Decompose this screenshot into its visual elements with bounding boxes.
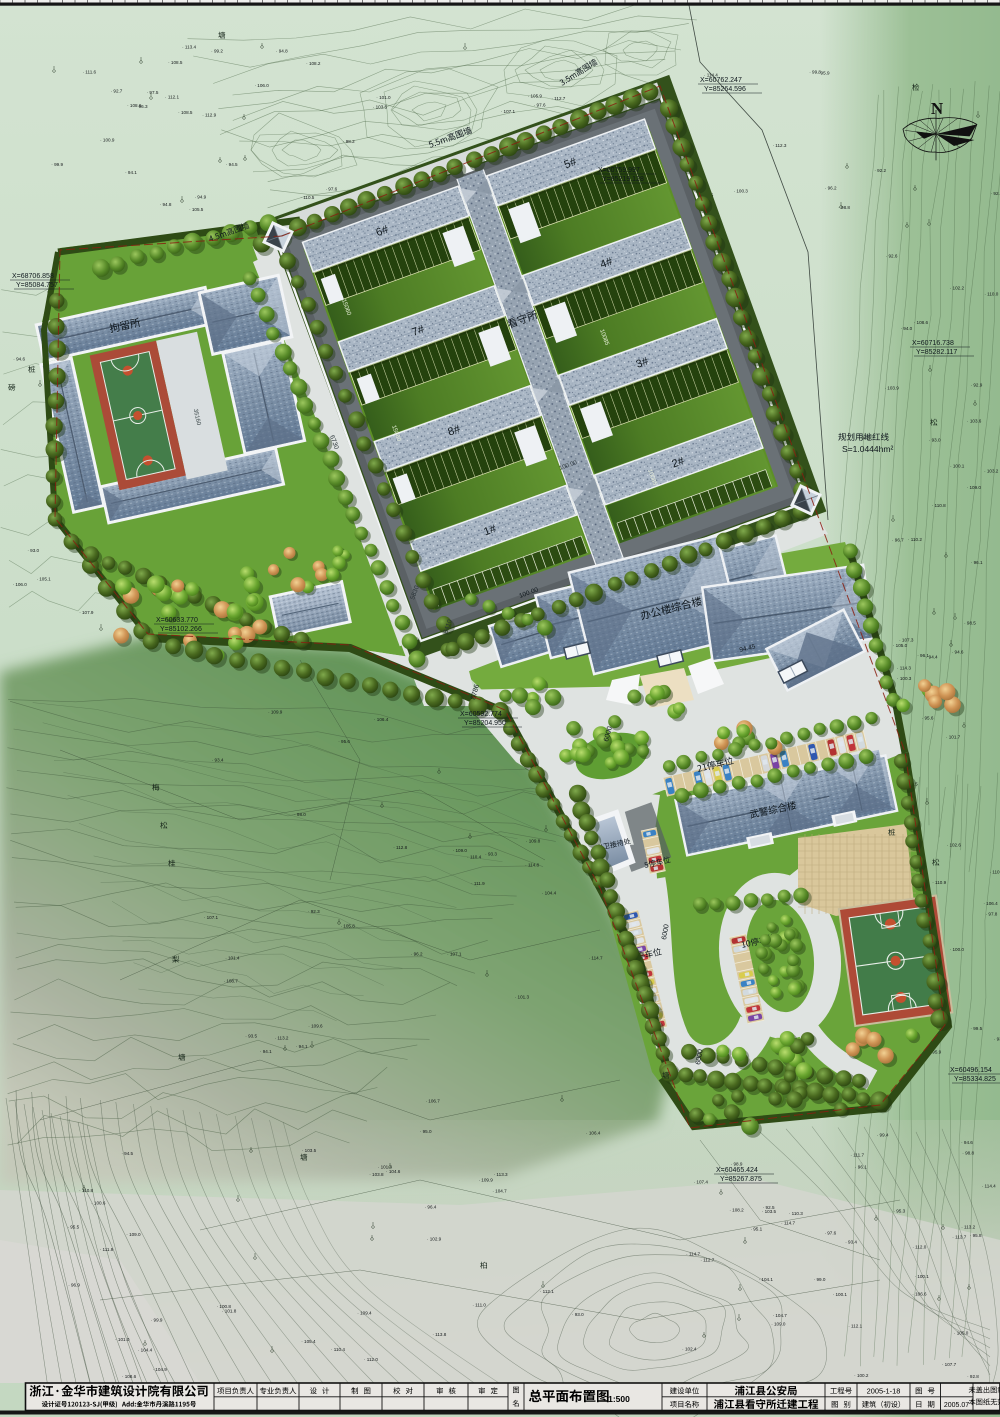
svg-text:· 97.8: · 97.8	[986, 911, 998, 916]
svg-text:· 112.1: · 112.1	[165, 95, 179, 100]
svg-text:· 94.9: · 94.9	[194, 195, 206, 200]
svg-text:· 99.9: · 99.9	[151, 1317, 163, 1322]
svg-text:· 109.9: · 109.9	[268, 709, 283, 714]
svg-text:· 95.3: · 95.3	[893, 1208, 905, 1213]
svg-text:· 105.4: · 105.4	[301, 1339, 316, 1344]
svg-text:· 95.5: · 95.5	[67, 1225, 79, 1230]
svg-text:Y=85102.266: Y=85102.266	[160, 626, 202, 633]
svg-text:Y=85334.825: Y=85334.825	[954, 1076, 996, 1083]
svg-text:· 94.5: · 94.5	[121, 1151, 133, 1156]
svg-text:· 93.9: · 93.9	[994, 1037, 1000, 1042]
svg-text:· 107.4: · 107.4	[694, 1180, 709, 1185]
svg-text:· 97.6: · 97.6	[534, 103, 546, 108]
svg-text:· 101.0: · 101.0	[376, 95, 391, 100]
svg-text:· 96.7: · 96.7	[892, 537, 904, 542]
svg-text:· 92.5: · 92.5	[763, 1205, 775, 1210]
svg-text:· 99.9: · 99.9	[51, 162, 63, 167]
svg-text:· 93.4: · 93.4	[212, 758, 224, 763]
svg-text:· 93.5: · 93.5	[245, 1033, 257, 1038]
svg-text:· 110.5: · 110.5	[300, 195, 314, 200]
svg-text:· 110.8: · 110.8	[79, 1188, 93, 1193]
svg-text:1:500: 1:500	[608, 1394, 630, 1404]
svg-text:· 110.4: · 110.4	[331, 1347, 345, 1352]
svg-text:S=1.0444hm²: S=1.0444hm²	[842, 444, 893, 454]
svg-text:· 107.1: · 107.1	[501, 109, 516, 114]
svg-text:Y=85282.117: Y=85282.117	[916, 349, 957, 356]
svg-text:· 103.9: · 103.9	[884, 385, 899, 390]
svg-text:· 110.8: · 110.8	[932, 503, 946, 508]
svg-text:· 95.6: · 95.6	[922, 715, 934, 720]
svg-text:N: N	[931, 99, 944, 118]
svg-text:· 112.7: · 112.7	[700, 1257, 714, 1262]
svg-text:· 95.1: · 95.1	[750, 1226, 762, 1231]
svg-text:· 104.7: · 104.7	[773, 1313, 788, 1318]
svg-text:· 94.0: · 94.0	[900, 326, 912, 331]
svg-text:· 114.3: · 114.3	[897, 665, 911, 670]
svg-text:X=60762.247: X=60762.247	[700, 77, 742, 84]
svg-text:· 100.9: · 100.9	[100, 137, 115, 142]
svg-text:· 106.0: · 106.0	[254, 83, 269, 88]
svg-text:· 114.7: · 114.7	[686, 1252, 700, 1257]
svg-text:· 109.0: · 109.0	[771, 1322, 786, 1327]
svg-text:· 101.7: · 101.7	[946, 735, 961, 740]
svg-text:· 100.3: · 100.3	[897, 676, 912, 681]
svg-text:· 97.5: · 97.5	[147, 90, 159, 95]
svg-text:· 110.0: · 110.0	[984, 292, 998, 297]
svg-text:Y=85267.875: Y=85267.875	[720, 1176, 762, 1183]
svg-text:· 98.8: · 98.8	[962, 1151, 974, 1156]
svg-text:2005-1-18: 2005-1-18	[867, 1387, 901, 1396]
svg-text:· 106.4: · 106.4	[374, 717, 389, 722]
svg-text:· 103.2: · 103.2	[984, 468, 999, 473]
svg-text:· 110.9: · 110.9	[932, 880, 946, 885]
svg-text:· 101.0: · 101.0	[115, 1337, 130, 1342]
svg-text:· 105.0: · 105.0	[954, 1331, 969, 1336]
svg-text:· 108.7: · 108.7	[224, 978, 239, 983]
svg-text:· 94.8: · 94.8	[276, 48, 288, 53]
svg-text:· 108.6: · 108.6	[914, 320, 929, 325]
svg-text:· 114.4: · 114.4	[982, 1184, 996, 1189]
svg-text:· 103.5: · 103.5	[302, 1148, 317, 1153]
svg-text:· 102.2: · 102.2	[950, 285, 965, 290]
svg-text:· 108.2: · 108.2	[306, 61, 321, 66]
svg-text:· 113.4: · 113.4	[182, 44, 196, 49]
svg-text:· 102.9: · 102.9	[427, 1236, 442, 1241]
svg-text:· 92.3: · 92.3	[308, 909, 320, 914]
svg-text:· 104.4: · 104.4	[542, 891, 557, 896]
svg-text:· 109.0: · 109.0	[126, 1232, 141, 1237]
svg-text:· 112.7: · 112.7	[551, 96, 565, 101]
svg-text:· 100.6: · 100.6	[91, 1200, 106, 1205]
svg-text:X=68706.858: X=68706.858	[12, 273, 54, 280]
svg-text:· 113.2: · 113.2	[275, 1035, 289, 1040]
svg-text:· 103.5: · 103.5	[373, 105, 388, 110]
svg-text:· 114.7: · 114.7	[589, 956, 603, 961]
svg-text:· 105.0: · 105.0	[893, 643, 908, 648]
svg-text:· 96.4: · 96.4	[425, 1205, 437, 1210]
svg-text:· 106.4: · 106.4	[983, 901, 998, 906]
svg-text:· 103.6: · 103.6	[967, 419, 982, 424]
svg-text:· 106.7: · 106.7	[426, 1099, 441, 1104]
svg-text:· 113.2: · 113.2	[961, 1224, 975, 1229]
svg-text:· 105.9: · 105.9	[528, 94, 543, 99]
svg-text:· 101.4: · 101.4	[225, 956, 240, 961]
svg-text:· 98.0: · 98.0	[294, 812, 306, 817]
svg-text:· 108.6: · 108.6	[122, 1374, 137, 1379]
svg-text:· 112.0: · 112.0	[364, 1357, 378, 1362]
svg-text:· 96.1: · 96.1	[971, 560, 983, 565]
svg-text:· 94.6: · 94.6	[952, 649, 964, 654]
svg-text:· 93.0: · 93.0	[27, 548, 39, 553]
svg-text:· 100.0: · 100.0	[950, 947, 965, 952]
svg-text:· 97.6: · 97.6	[325, 187, 337, 192]
svg-text:· 104.4: · 104.4	[138, 1347, 153, 1352]
svg-text:· 111.6: · 111.6	[82, 70, 96, 75]
svg-text:· 106.0: · 106.0	[13, 582, 28, 587]
svg-text:· 92.8: · 92.8	[967, 1374, 979, 1379]
svg-text:· 96.1: · 96.1	[855, 1164, 867, 1169]
svg-text:· 109.0: · 109.0	[453, 848, 468, 853]
svg-text:· 114.8: · 114.8	[525, 863, 539, 868]
svg-text:· 94.1: · 94.1	[125, 170, 137, 175]
svg-text:· 109.9: · 109.9	[478, 1177, 493, 1182]
svg-text:X=60496.154: X=60496.154	[950, 1067, 992, 1074]
svg-text:X=60592.774: X=60592.774	[460, 711, 502, 718]
svg-text:· 108.5: · 108.5	[168, 60, 183, 65]
svg-text:· 92.6: · 92.6	[886, 253, 898, 258]
svg-text:· 110.4: · 110.4	[467, 854, 481, 859]
svg-text:· 109.0: · 109.0	[967, 485, 982, 490]
svg-text:· 112.1: · 112.1	[848, 1323, 862, 1328]
svg-text:· 99.2: · 99.2	[211, 49, 223, 54]
svg-text:· 107.7: · 107.7	[942, 1362, 957, 1367]
svg-text:· 98.5: · 98.5	[964, 621, 976, 626]
svg-text:· 101.3: · 101.3	[515, 995, 530, 1000]
svg-text:· 93.0: · 93.0	[929, 437, 941, 442]
svg-text:· 105.1: · 105.1	[36, 577, 51, 582]
svg-text:· 107.1: · 107.1	[204, 915, 219, 920]
svg-text:· 112.9: · 112.9	[202, 113, 216, 118]
svg-text:· 111.9: · 111.9	[100, 1247, 114, 1252]
svg-text:· 109.8: · 109.8	[526, 838, 541, 843]
svg-text:· 93.3: · 93.3	[485, 851, 497, 856]
svg-text:· 105.5: · 105.5	[189, 207, 204, 212]
svg-text:· 107.9: · 107.9	[79, 610, 94, 615]
svg-text:· 99.5: · 99.5	[970, 1026, 982, 1031]
svg-text:· 113.7: · 113.7	[952, 1235, 966, 1240]
svg-text:· 94.5: · 94.5	[226, 162, 238, 167]
svg-text:2005.07: 2005.07	[944, 1402, 969, 1409]
svg-text:· 105.8: · 105.8	[340, 923, 355, 928]
svg-text:X=60633.770: X=60633.770	[156, 617, 198, 624]
svg-text:· 93.4: · 93.4	[845, 1239, 857, 1244]
svg-text:· 112.8: · 112.8	[393, 845, 407, 850]
svg-text:· 104.9: · 104.9	[152, 1367, 167, 1372]
svg-text:· 111.9: · 111.9	[471, 881, 485, 886]
svg-text:· 100.8: · 100.8	[217, 1304, 232, 1309]
svg-text:· 92.7: · 92.7	[111, 89, 123, 94]
svg-text:· 96.1: · 96.1	[917, 653, 929, 658]
svg-text:· 102.6: · 102.6	[947, 842, 962, 847]
svg-text:· 100.2: · 100.2	[854, 1373, 869, 1378]
svg-text:· 113.8: · 113.8	[432, 1332, 446, 1337]
svg-text:· 95.8: · 95.8	[970, 1233, 982, 1238]
svg-text:· 100.1: · 100.1	[833, 1292, 848, 1297]
svg-text:· 92.9: · 92.9	[971, 382, 983, 387]
svg-text:· 94.6: · 94.6	[13, 356, 25, 361]
svg-text:· 104.1: · 104.1	[759, 1277, 774, 1282]
svg-text:· 100.3: · 100.3	[734, 189, 749, 194]
svg-text:· 111.0: · 111.0	[472, 1303, 486, 1308]
svg-text:· 104.6: · 104.6	[386, 1169, 401, 1174]
svg-text:· 110.2: · 110.2	[908, 537, 922, 542]
svg-text:· 92.2: · 92.2	[874, 168, 886, 173]
svg-text:· 96.9: · 96.9	[68, 1283, 80, 1288]
svg-text:· 107.3: · 107.3	[899, 638, 914, 643]
svg-text:· 101.8: · 101.8	[222, 1309, 237, 1314]
svg-text:· 108.5: · 108.5	[178, 110, 193, 115]
svg-text:· 109.4: · 109.4	[357, 1310, 372, 1315]
svg-text:· 94.8: · 94.8	[160, 202, 172, 207]
svg-text:X=60759.997: X=60759.997	[598, 167, 640, 174]
svg-text:· 109.6: · 109.6	[308, 1023, 323, 1028]
svg-text:· 100.1: · 100.1	[915, 1274, 930, 1279]
svg-text:· 114.7: · 114.7	[781, 1220, 795, 1225]
svg-text:· 94.6: · 94.6	[961, 1140, 973, 1145]
svg-text:· 94.1: · 94.1	[260, 1049, 272, 1054]
svg-text:· 111.7: · 111.7	[850, 1152, 864, 1157]
svg-text:· 98.9: · 98.9	[731, 1161, 743, 1166]
svg-text:Y=85219.128: Y=85219.128	[602, 176, 644, 183]
svg-text:· 98.2: · 98.2	[343, 139, 355, 144]
svg-text:Y=85084.757: Y=85084.757	[16, 282, 58, 289]
svg-text:· 95.0: · 95.0	[420, 1129, 432, 1134]
svg-text:Y=85204.950: Y=85204.950	[464, 720, 506, 727]
svg-text:· 103.8: · 103.8	[369, 1172, 384, 1177]
svg-text:· 104.7: · 104.7	[492, 1189, 507, 1194]
svg-text:· 112.3: · 112.3	[772, 143, 786, 148]
svg-text:· 95.6: · 95.6	[338, 739, 350, 744]
svg-text:· 112.1: · 112.1	[540, 1289, 554, 1294]
svg-text:· 113.3: · 113.3	[494, 1172, 508, 1177]
svg-text:· 96.2: · 96.2	[411, 951, 423, 956]
svg-text:· 92.9: · 92.9	[991, 191, 1000, 196]
svg-text:· 99.8: · 99.8	[809, 70, 821, 75]
svg-text:X=60465.424: X=60465.424	[716, 1167, 758, 1174]
svg-text:· 108.6: · 108.6	[127, 103, 142, 108]
svg-text:· 96.2: · 96.2	[825, 186, 837, 191]
svg-text:· 108.2: · 108.2	[729, 1208, 744, 1213]
svg-text:· 112.0: · 112.0	[912, 1245, 926, 1250]
svg-text:· 102.4: · 102.4	[682, 1346, 697, 1351]
svg-text:· 110.3: · 110.3	[789, 1211, 803, 1216]
svg-text:· 110.7: · 110.7	[989, 869, 1000, 874]
svg-text:· 94.1: · 94.1	[296, 1044, 308, 1049]
svg-text:· 106.4: · 106.4	[586, 1131, 601, 1136]
svg-text:· 97.6: · 97.6	[824, 1230, 836, 1235]
svg-text:· 107.1: · 107.1	[447, 951, 462, 956]
svg-text:X=60716.738: X=60716.738	[912, 340, 954, 347]
svg-text:· 99.0: · 99.0	[814, 1277, 826, 1282]
svg-text:· 100.1: · 100.1	[950, 463, 965, 468]
svg-text:· 106.6: · 106.6	[912, 1292, 927, 1297]
svg-text:· 99.4: · 99.4	[877, 1132, 889, 1137]
svg-text:· 93.0: · 93.0	[572, 1312, 584, 1317]
